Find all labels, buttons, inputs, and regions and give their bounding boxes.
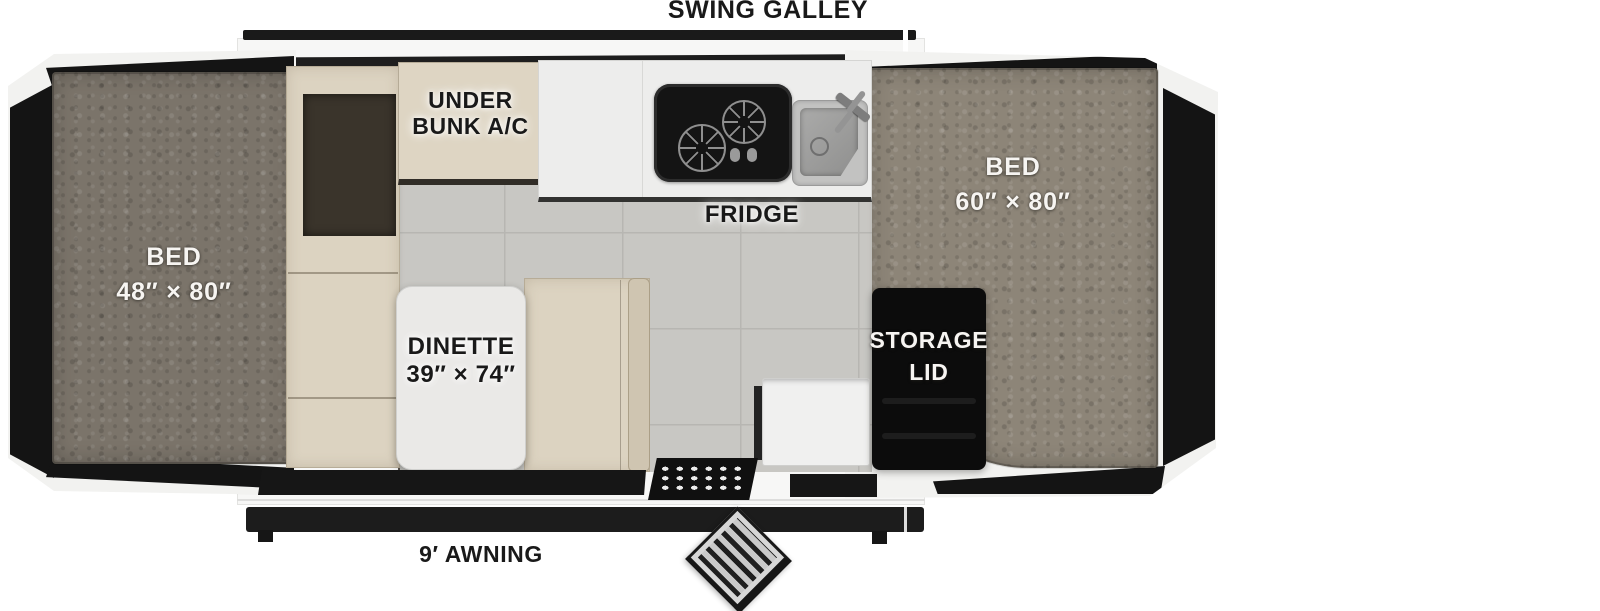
sink <box>792 100 868 186</box>
cooktop-burner-icon <box>678 124 726 172</box>
bed-right-name: BED <box>868 150 1158 185</box>
floor-mat <box>258 470 646 495</box>
bed-left-size: 48″ × 80″ <box>52 275 296 310</box>
bench-armrest <box>628 278 650 472</box>
under-bunk-storage-opening <box>303 94 396 236</box>
fridge-label: FRIDGE <box>652 201 852 229</box>
roof-rail <box>243 30 916 40</box>
cushion-seam <box>288 272 398 274</box>
bed-left-name: BED <box>52 240 296 275</box>
dinette-size: 39″ × 74″ <box>397 361 525 389</box>
body-bottom-edge <box>237 499 925 501</box>
counter-seam <box>642 61 643 197</box>
grate-perforations <box>658 464 748 494</box>
under-bunk-ac-label: UNDER BUNK A/C <box>389 87 552 140</box>
entry-cabinet <box>762 378 870 466</box>
cooktop-knob <box>730 148 740 162</box>
tent-panel-right-bottom <box>933 466 1165 494</box>
floorplan: BED 48″ × 80″ BED 60″ × 80″ UNDER BUNK A… <box>0 0 1600 611</box>
cushion-seam <box>620 280 621 470</box>
under-bunk-ac-line2: BUNK A/C <box>389 113 552 139</box>
storage-lid-line1: STORAGE <box>864 324 994 356</box>
bed-right-label: BED 60″ × 80″ <box>868 150 1158 220</box>
storage-lid: STORAGE LID <box>872 288 986 470</box>
under-bunk-ac-line1: UNDER <box>389 87 552 113</box>
storage-lid-label: STORAGE LID <box>864 324 994 388</box>
cooktop <box>654 84 792 182</box>
storage-lid-panel-line <box>882 398 976 404</box>
dinette-label: DINETTE 39″ × 74″ <box>397 333 525 388</box>
cooktop-burner-icon <box>722 100 766 144</box>
bed-left-platform: BED 48″ × 80″ <box>6 50 296 495</box>
awning-bracket <box>872 531 887 544</box>
sink-drain <box>810 137 829 156</box>
dinette-name: DINETTE <box>397 333 525 361</box>
floor-mat <box>790 474 877 497</box>
bed-right-size: 60″ × 80″ <box>868 185 1158 220</box>
swing-galley-label: SWING GALLEY <box>618 0 918 25</box>
dinette-bench <box>524 278 650 472</box>
under-bunk-ac-cabinet: UNDER BUNK A/C <box>398 62 543 185</box>
entry-step-grate <box>648 458 758 500</box>
cooktop-knob <box>747 148 757 162</box>
bed-left-label: BED 48″ × 80″ <box>52 240 296 310</box>
awning-label: 9′ AWNING <box>381 541 581 567</box>
dinette-table: DINETTE 39″ × 74″ <box>396 286 526 470</box>
storage-lid-panel-line <box>882 433 976 439</box>
tent-panel-left-side <box>10 84 54 478</box>
awning-bar <box>246 507 924 532</box>
tent-panel-right-side <box>1163 88 1215 466</box>
bed-left-mattress: BED 48″ × 80″ <box>52 72 296 464</box>
storage-lid-line2: LID <box>864 356 994 388</box>
awning-bar-divider <box>904 507 907 532</box>
cushion-seam <box>288 397 398 399</box>
bunk-sofa <box>286 66 400 468</box>
awning-bracket <box>258 530 273 542</box>
